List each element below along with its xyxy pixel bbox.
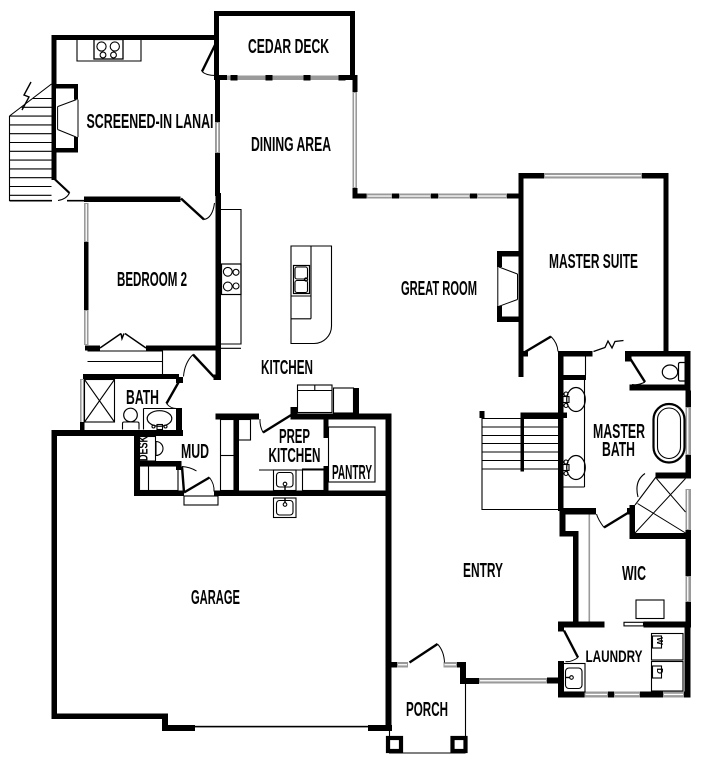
svg-text:LAUNDRY: LAUNDRY — [586, 647, 643, 666]
svg-text:GARAGE: GARAGE — [191, 587, 240, 609]
svg-text:CEDAR DECK: CEDAR DECK — [248, 36, 329, 58]
svg-text:BATH: BATH — [126, 387, 159, 409]
svg-text:PORCH: PORCH — [406, 699, 448, 721]
svg-text:MUD: MUD — [181, 441, 209, 463]
svg-text:DINING AREA: DINING AREA — [251, 134, 331, 156]
svg-text:ENTRY: ENTRY — [463, 560, 503, 582]
svg-text:MASTER SUITE: MASTER SUITE — [549, 251, 638, 273]
svg-text:DESK: DESK — [136, 436, 151, 461]
svg-text:W: W — [655, 637, 664, 645]
svg-text:WIC: WIC — [622, 563, 646, 585]
svg-text:KITCHEN: KITCHEN — [269, 445, 321, 467]
svg-text:D: D — [655, 668, 664, 674]
svg-text:KITCHEN: KITCHEN — [261, 357, 313, 379]
svg-text:GREAT ROOM: GREAT ROOM — [401, 278, 477, 300]
svg-text:PANTRY: PANTRY — [332, 462, 372, 484]
svg-text:SCREENED-IN LANAI: SCREENED-IN LANAI — [87, 111, 214, 133]
svg-text:BEDROOM 2: BEDROOM 2 — [117, 269, 187, 291]
svg-text:BATH: BATH — [602, 439, 635, 461]
